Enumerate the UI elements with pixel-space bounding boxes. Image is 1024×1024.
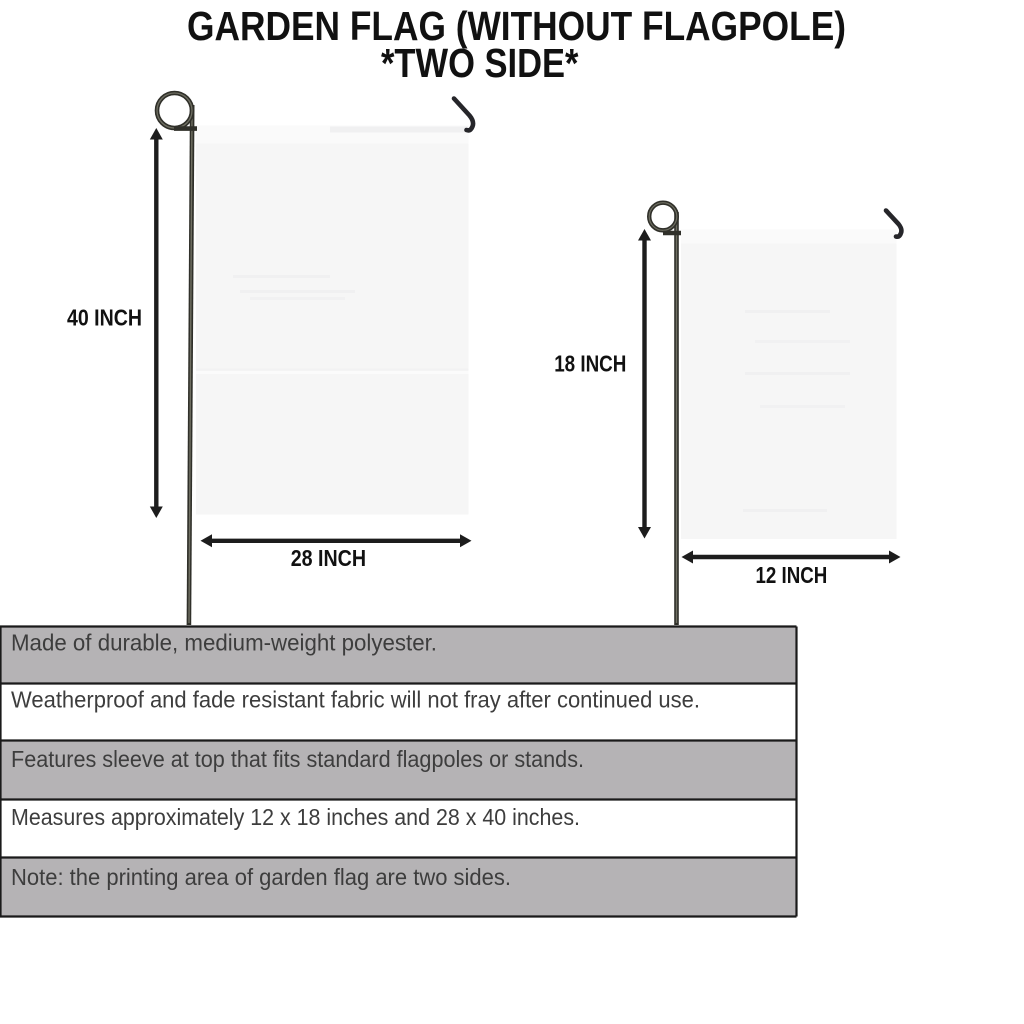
svg-text:Made of durable, medium-weight: Made of durable, medium-weight polyester…: [11, 630, 437, 656]
svg-text:Measures approximately 12 x 18: Measures approximately 12 x 18 inches an…: [11, 804, 580, 830]
svg-text:12 INCH: 12 INCH: [756, 562, 828, 588]
svg-text:Weatherproof and fade resistan: Weatherproof and fade resistant fabric w…: [11, 687, 700, 713]
svg-text:*TWO SIDE*: *TWO SIDE*: [381, 40, 579, 86]
svg-text:Features sleeve at top that fi: Features sleeve at top that fits standar…: [11, 746, 584, 772]
svg-text:18 INCH: 18 INCH: [554, 351, 626, 377]
svg-text:28 INCH: 28 INCH: [291, 545, 366, 571]
svg-text:40 INCH: 40 INCH: [67, 305, 142, 331]
svg-text:Note: the printing area of gar: Note: the printing area of garden flag a…: [11, 864, 511, 890]
